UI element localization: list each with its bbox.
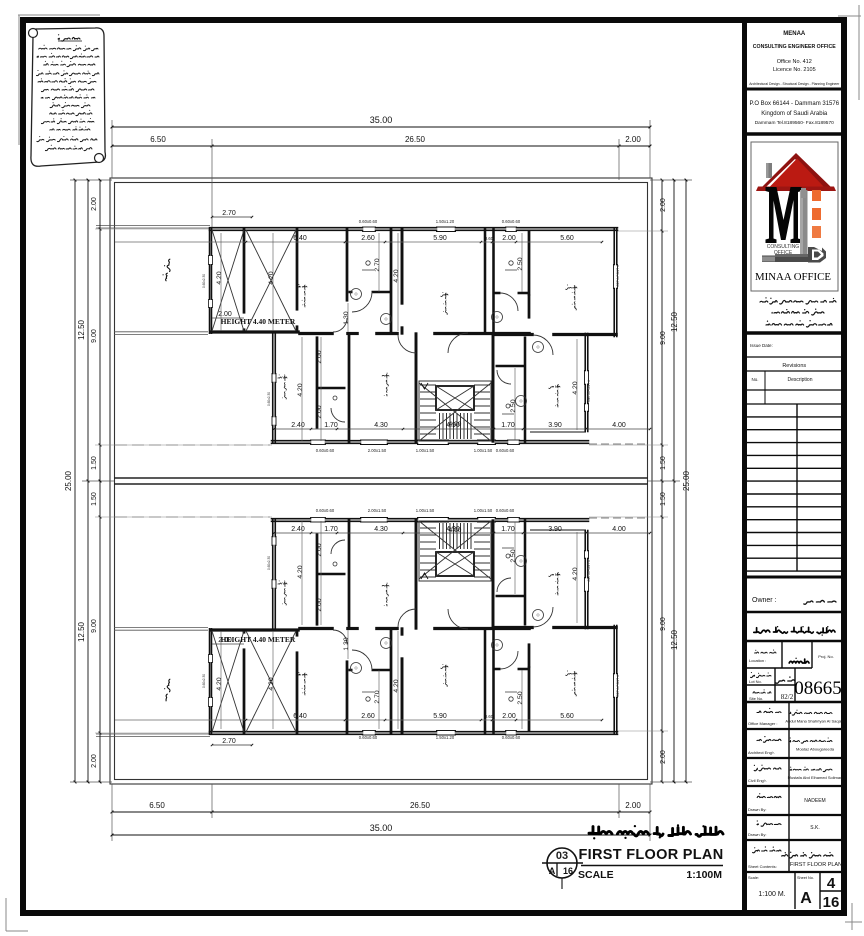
svg-text:Mustafa Abd Elhamed Soliman: Mustafa Abd Elhamed Soliman — [788, 775, 843, 780]
svg-text:Lot No.: Lot No. — [749, 679, 762, 684]
svg-text:2.50: 2.50 — [517, 691, 524, 704]
svg-text:OFFICE: OFFICE — [774, 250, 793, 256]
svg-text:2.00: 2.00 — [91, 197, 98, 211]
svg-text:Drawn By:: Drawn By: — [748, 807, 766, 812]
svg-text:Licence No. 2105: Licence No. 2105 — [773, 67, 816, 73]
svg-text:12.50: 12.50 — [670, 311, 679, 332]
svg-text:S.K.: S.K. — [810, 825, 819, 831]
svg-text:0.60x0.60: 0.60x0.60 — [502, 735, 521, 740]
svg-text:9.00: 9.00 — [91, 329, 98, 343]
svg-text:2.00: 2.00 — [502, 713, 516, 720]
svg-text:2.00: 2.00 — [316, 598, 323, 611]
svg-text:CONSULTING ENGINEER OFFICE: CONSULTING ENGINEER OFFICE — [753, 44, 836, 50]
svg-text:Proj. No.: Proj. No. — [818, 654, 834, 659]
svg-text:A: A — [549, 866, 556, 876]
svg-text:1.30: 1.30 — [343, 637, 350, 650]
svg-text:1.00x1.50: 1.00x1.50 — [474, 508, 493, 513]
svg-text:A: A — [800, 890, 812, 907]
svg-text:2.00x1.50: 2.00x1.50 — [368, 448, 387, 453]
svg-text:0.60x0.60: 0.60x0.60 — [496, 448, 515, 453]
svg-text:1.50: 1.50 — [91, 492, 98, 506]
svg-text:Owner :: Owner : — [752, 597, 777, 604]
svg-text:4.20: 4.20 — [216, 677, 223, 690]
svg-text:Abdul Mana Shahriyan Al Saqawi: Abdul Mana Shahriyan Al Saqawi — [785, 719, 844, 724]
svg-text:P.O Box 66144 - Dammam 31576: P.O Box 66144 - Dammam 31576 — [749, 101, 839, 107]
svg-text:Revisions: Revisions — [782, 363, 806, 369]
svg-text:Description: Description — [787, 377, 812, 383]
svg-text:2.50: 2.50 — [517, 257, 524, 270]
svg-text:Dammam Tel.8189560- Fax.818957: Dammam Tel.8189560- Fax.8189570 — [755, 120, 834, 126]
svg-text:9.00: 9.00 — [660, 331, 667, 345]
svg-text:1.70: 1.70 — [501, 526, 515, 533]
svg-text:1.70: 1.70 — [324, 526, 338, 533]
svg-text:2.60: 2.60 — [361, 235, 375, 242]
svg-text:6.50: 6.50 — [150, 135, 166, 144]
svg-text:2.40: 2.40 — [291, 526, 305, 533]
svg-text:0.60x0.60: 0.60x0.60 — [359, 735, 378, 740]
svg-text:Drawn By:: Drawn By: — [748, 832, 766, 837]
svg-text:Kingdom of Saudi Arabia: Kingdom of Saudi Arabia — [761, 111, 828, 117]
svg-text:1.70: 1.70 — [324, 422, 338, 429]
svg-text:2.00: 2.00 — [218, 311, 232, 318]
svg-text:4.00: 4.00 — [612, 526, 626, 533]
svg-text:NADEEM: NADEEM — [804, 798, 825, 804]
svg-text:5.60: 5.60 — [560, 713, 574, 720]
svg-text:Scale:: Scale: — [748, 875, 759, 880]
svg-text:GET A POST 4: GET A POST 4 — [587, 560, 591, 582]
svg-text:1.50: 1.50 — [91, 456, 98, 470]
svg-text:Moataz Abougareeda: Moataz Abougareeda — [796, 747, 835, 752]
svg-text:2.70: 2.70 — [374, 690, 381, 703]
svg-text:2.00: 2.00 — [625, 801, 641, 810]
svg-text:FIRST FLOOR PLAN: FIRST FLOOR PLAN — [790, 862, 842, 868]
svg-text:4.20: 4.20 — [572, 381, 579, 394]
svg-text:0.60x0.60: 0.60x0.60 — [502, 219, 521, 224]
svg-text:4.30: 4.30 — [374, 526, 388, 533]
svg-text:MENAA: MENAA — [783, 31, 806, 37]
svg-text:6.40: 6.40 — [293, 713, 307, 720]
svg-text:25.00: 25.00 — [64, 470, 73, 491]
svg-text:2.00: 2.00 — [316, 405, 323, 418]
svg-text:2.00: 2.00 — [625, 135, 641, 144]
svg-text:0.60: 0.60 — [485, 714, 494, 719]
svg-text:Issue Date:: Issue Date: — [750, 343, 773, 348]
svg-text:2.00x1.50: 2.00x1.50 — [368, 508, 387, 513]
svg-text:4.90: 4.90 — [449, 421, 462, 428]
svg-text:SCALE: SCALE — [578, 869, 614, 881]
svg-text:1.50: 1.50 — [660, 456, 667, 470]
svg-text:4.20: 4.20 — [572, 567, 579, 580]
svg-text:9.00: 9.00 — [660, 617, 667, 631]
svg-text:2.50: 2.50 — [510, 549, 517, 562]
svg-text:08665: 08665 — [794, 678, 842, 699]
svg-text:4.20: 4.20 — [268, 271, 275, 284]
svg-text:1.30: 1.30 — [343, 311, 350, 324]
svg-text:1:100M: 1:100M — [686, 869, 722, 881]
svg-text:4.30: 4.30 — [374, 422, 388, 429]
svg-text:16: 16 — [823, 894, 840, 911]
svg-text:2.00: 2.00 — [660, 198, 667, 212]
svg-text:2.00: 2.00 — [660, 750, 667, 764]
svg-text:Civil Eng'r.: Civil Eng'r. — [748, 778, 767, 783]
svg-text:4: 4 — [827, 875, 836, 892]
svg-text:1:100 M.: 1:100 M. — [758, 891, 785, 898]
svg-text:9.00: 9.00 — [91, 619, 98, 633]
svg-text:4.20: 4.20 — [393, 679, 400, 692]
svg-text:82/2: 82/2 — [781, 693, 794, 701]
svg-text:6.50: 6.50 — [149, 801, 165, 810]
svg-text:1.70: 1.70 — [501, 422, 515, 429]
svg-text:4.20: 4.20 — [297, 383, 304, 396]
svg-text:GET A POST 4: GET A POST 4 — [616, 265, 620, 287]
svg-text:35.00: 35.00 — [370, 823, 393, 833]
svg-text:5.90: 5.90 — [433, 235, 447, 242]
svg-text:0.60x2.30: 0.60x2.30 — [202, 274, 206, 288]
svg-text:4.00: 4.00 — [612, 422, 626, 429]
svg-text:0.60x0.60: 0.60x0.60 — [316, 508, 335, 513]
svg-text:GET A POST 4: GET A POST 4 — [587, 380, 591, 402]
svg-text:5.90: 5.90 — [433, 713, 447, 720]
svg-text:12.50: 12.50 — [77, 621, 86, 642]
svg-text:1.00x1.50: 1.00x1.50 — [474, 448, 493, 453]
svg-text:1.00x1.50: 1.00x1.50 — [416, 508, 435, 513]
svg-text:2.60: 2.60 — [361, 713, 375, 720]
svg-text:0.60: 0.60 — [485, 236, 494, 241]
svg-text:3.90: 3.90 — [548, 526, 562, 533]
svg-text:2.70: 2.70 — [222, 210, 236, 217]
svg-text:4.20: 4.20 — [393, 269, 400, 282]
svg-text:4.20: 4.20 — [216, 271, 223, 284]
svg-text:Site No.: Site No. — [749, 696, 763, 701]
svg-text:4.90: 4.90 — [449, 527, 462, 534]
svg-text:0.60x2.30: 0.60x2.30 — [202, 674, 206, 688]
svg-text:2.70: 2.70 — [374, 258, 381, 271]
svg-text:1.50: 1.50 — [660, 492, 667, 506]
svg-text:Office No. 412: Office No. 412 — [777, 59, 812, 65]
svg-text:2.00: 2.00 — [316, 350, 323, 363]
svg-text:Location :: Location : — [749, 658, 766, 663]
svg-text:2.50: 2.50 — [510, 399, 517, 412]
svg-text:5.60: 5.60 — [560, 235, 574, 242]
svg-text:2.00: 2.00 — [316, 543, 323, 556]
svg-text:2.00: 2.00 — [218, 637, 232, 644]
svg-text:0.60x2.30: 0.60x2.30 — [267, 556, 271, 570]
svg-text:Sheet Contents:: Sheet Contents: — [748, 864, 777, 869]
svg-text:1.50x1.20: 1.50x1.20 — [436, 735, 455, 740]
svg-text:2.40: 2.40 — [291, 422, 305, 429]
svg-text:Office Manager :: Office Manager : — [748, 721, 778, 726]
svg-text:MINAA OFFICE: MINAA OFFICE — [755, 271, 831, 283]
svg-text:12.50: 12.50 — [670, 629, 679, 650]
svg-text:1.00x1.50: 1.00x1.50 — [416, 448, 435, 453]
svg-text:03: 03 — [556, 850, 568, 862]
svg-text:4.20: 4.20 — [297, 565, 304, 578]
svg-text:0.60x0.60: 0.60x0.60 — [316, 448, 335, 453]
svg-text:FIRST FLOOR PLAN: FIRST FLOOR PLAN — [579, 847, 724, 863]
svg-text:1.50x1.20: 1.50x1.20 — [436, 219, 455, 224]
svg-text:25.00: 25.00 — [682, 470, 691, 491]
svg-text:0.60x2.30: 0.60x2.30 — [267, 392, 271, 406]
svg-text:26.50: 26.50 — [410, 801, 431, 810]
svg-text:Architectural Design - Structu: Architectural Design - Structural Design… — [749, 82, 840, 86]
svg-text:12.50: 12.50 — [77, 319, 86, 340]
svg-text:35.00: 35.00 — [370, 115, 393, 125]
svg-text:0.60x0.60: 0.60x0.60 — [496, 508, 515, 513]
svg-text:2.00: 2.00 — [502, 235, 516, 242]
svg-text:6.40: 6.40 — [293, 235, 307, 242]
svg-text:26.50: 26.50 — [405, 135, 426, 144]
svg-text:0.60x0.60: 0.60x0.60 — [359, 219, 378, 224]
svg-text:No.: No. — [751, 377, 758, 382]
svg-text:Sheet No.: Sheet No. — [797, 876, 814, 880]
svg-text:2.00: 2.00 — [91, 754, 98, 768]
svg-text:4.20: 4.20 — [268, 677, 275, 690]
svg-text:HEIGHT 4.40 METER: HEIGHT 4.40 METER — [221, 635, 296, 644]
svg-text:Architect Eng'r.: Architect Eng'r. — [748, 750, 775, 755]
svg-text:16: 16 — [563, 866, 573, 876]
svg-text:2.70: 2.70 — [222, 738, 236, 745]
svg-text:GET A POST 4: GET A POST 4 — [616, 675, 620, 697]
svg-text:3.90: 3.90 — [548, 422, 562, 429]
